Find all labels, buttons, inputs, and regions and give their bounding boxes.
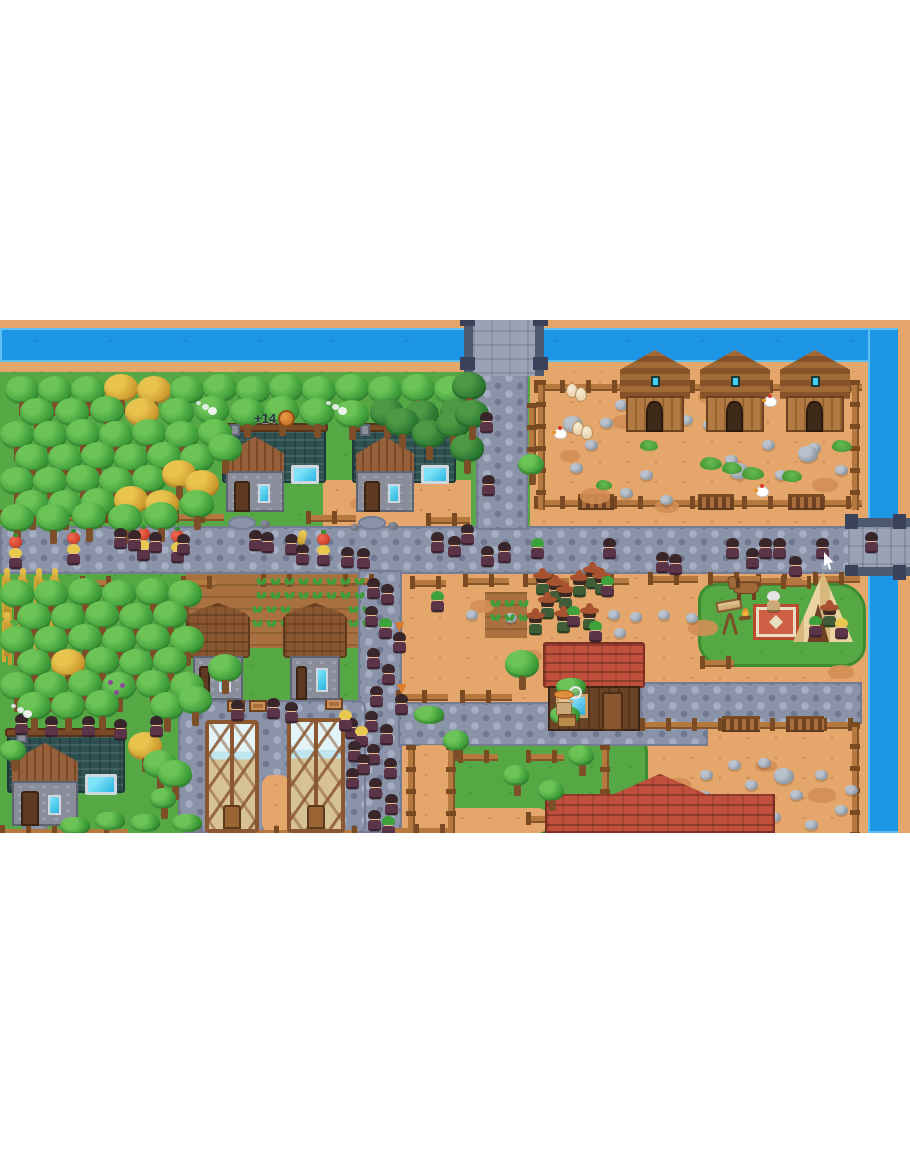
rock — [620, 488, 633, 498]
greenhouse[interactable] — [205, 720, 259, 833]
villager[interactable] — [430, 591, 445, 614]
tree — [36, 504, 70, 546]
villager[interactable] — [588, 621, 603, 644]
crop-sprout — [284, 590, 295, 599]
rock — [614, 628, 626, 638]
villager[interactable] — [81, 716, 96, 739]
villager[interactable] — [480, 546, 495, 569]
villager[interactable] — [127, 530, 142, 553]
rock — [728, 760, 741, 770]
easel — [722, 613, 738, 635]
villager[interactable] — [384, 794, 399, 817]
rock — [790, 790, 803, 800]
crop-sprout — [490, 612, 501, 621]
villager[interactable] — [379, 724, 394, 747]
crop-sprout — [354, 590, 365, 599]
crop-sprout — [504, 598, 515, 607]
villager[interactable] — [148, 532, 163, 555]
villager[interactable] — [369, 686, 384, 709]
villager[interactable] — [394, 694, 409, 717]
crop-sprout — [284, 576, 295, 585]
villager[interactable] — [266, 698, 281, 721]
villager[interactable] — [758, 538, 773, 561]
villager[interactable] — [66, 544, 81, 567]
stone-bridge[interactable] — [464, 320, 544, 376]
rock — [388, 522, 398, 530]
floating-coin-text: +14 — [254, 410, 295, 427]
grass-tuft — [640, 440, 658, 451]
egg — [572, 421, 594, 441]
crop-sprout — [354, 576, 365, 585]
villager[interactable] — [668, 554, 683, 577]
rock — [762, 440, 775, 450]
villager[interactable] — [808, 616, 823, 639]
villager[interactable] — [316, 545, 331, 568]
rock — [570, 463, 583, 473]
tree — [518, 454, 544, 486]
tree — [505, 650, 539, 692]
trader-npc[interactable] — [552, 686, 582, 728]
villager[interactable] — [497, 542, 512, 565]
crop-sprout — [270, 590, 281, 599]
dirt-patch — [808, 788, 836, 803]
fence — [526, 750, 564, 763]
tree — [208, 654, 242, 696]
villager[interactable] — [364, 606, 379, 629]
rock — [835, 805, 848, 815]
villager[interactable] — [230, 700, 245, 723]
chimney-smoke — [205, 405, 217, 415]
villager[interactable] — [356, 548, 371, 571]
chicken[interactable] — [764, 396, 777, 407]
rock — [835, 465, 848, 475]
villager[interactable] — [528, 614, 543, 637]
grass-tuft — [722, 462, 742, 474]
rock — [815, 770, 828, 780]
villager[interactable] — [345, 768, 360, 791]
fence — [406, 745, 416, 833]
horse[interactable] — [728, 576, 762, 601]
fence — [463, 574, 509, 587]
dirt-patch — [828, 665, 854, 679]
villager[interactable] — [378, 618, 393, 641]
crop-sprout — [252, 618, 263, 627]
chicken-coop[interactable] — [700, 350, 770, 435]
crop-sprout — [340, 576, 351, 585]
rock — [630, 612, 642, 622]
bush — [414, 706, 444, 724]
villager[interactable] — [367, 810, 382, 833]
river-water — [868, 328, 900, 833]
bush — [95, 812, 125, 830]
rock — [466, 610, 478, 620]
chicken-coop[interactable] — [620, 350, 690, 435]
villager[interactable] — [338, 710, 353, 733]
stone-bridge[interactable] — [848, 518, 910, 576]
game-viewport[interactable]: +14 — [0, 320, 910, 833]
crop-sprout — [266, 618, 277, 627]
villager[interactable] — [392, 632, 407, 655]
chimney-smoke — [20, 708, 32, 718]
crop-sprout — [518, 598, 529, 607]
bush — [172, 814, 202, 832]
villager[interactable] — [834, 618, 849, 641]
tree — [180, 490, 214, 532]
grass-tuft — [742, 467, 764, 480]
villager[interactable] — [380, 584, 395, 607]
greenhouse[interactable] — [287, 718, 345, 833]
grass-tuft — [832, 440, 852, 452]
grass-tuft — [782, 470, 802, 482]
villager[interactable] — [366, 578, 381, 601]
tree — [538, 780, 564, 812]
villager[interactable] — [340, 547, 355, 570]
rock — [798, 446, 818, 462]
tree — [178, 686, 212, 728]
villager[interactable] — [368, 778, 383, 801]
chimney-smoke — [335, 405, 347, 415]
rock — [805, 820, 818, 830]
rock — [686, 613, 698, 623]
gate-icon[interactable] — [786, 716, 824, 732]
rock — [260, 520, 270, 528]
villager[interactable] — [284, 702, 299, 725]
rock — [745, 780, 758, 790]
villager[interactable] — [260, 532, 275, 555]
crop-sprout — [490, 598, 501, 607]
crop-sprout — [298, 590, 309, 599]
coin-gain-value: +14 — [254, 411, 276, 426]
villager[interactable] — [176, 534, 191, 557]
rock — [585, 440, 598, 450]
tree — [300, 398, 334, 440]
rock — [758, 758, 771, 768]
tree — [503, 765, 529, 797]
fence — [536, 380, 546, 510]
villager[interactable] — [149, 716, 164, 739]
villager[interactable] — [566, 606, 581, 629]
villager[interactable] — [530, 538, 545, 561]
rock — [845, 785, 858, 795]
tree — [0, 740, 26, 772]
crop-sprout — [256, 576, 267, 585]
rock — [660, 495, 673, 505]
chicken-coop[interactable] — [780, 350, 850, 435]
rock — [350, 524, 359, 531]
sand-ground — [898, 320, 910, 833]
tree — [443, 730, 469, 762]
villager[interactable] — [772, 538, 787, 561]
villager[interactable] — [44, 716, 59, 739]
grass-tuft — [700, 457, 722, 470]
villager[interactable] — [383, 758, 398, 781]
rock — [608, 610, 620, 620]
villager[interactable] — [864, 532, 879, 555]
crop-sprout — [504, 612, 515, 621]
fence — [388, 824, 450, 833]
chicken[interactable] — [756, 486, 769, 497]
rock — [700, 770, 713, 780]
dirt-patch — [560, 450, 580, 462]
crop-sprout — [326, 590, 337, 599]
farmhouse[interactable] — [285, 603, 345, 705]
villager[interactable] — [600, 576, 615, 599]
gate-icon[interactable] — [722, 716, 760, 732]
crate — [249, 700, 267, 712]
crop-sprout — [312, 590, 323, 599]
rock — [774, 768, 794, 784]
villager[interactable] — [788, 556, 803, 579]
crop-sprout — [270, 576, 281, 585]
villager[interactable] — [430, 532, 445, 555]
crop-sprout — [256, 590, 267, 599]
villager[interactable] — [8, 548, 23, 571]
egg — [566, 383, 588, 403]
crop-sprout — [312, 576, 323, 585]
villager[interactable] — [602, 538, 617, 561]
villager[interactable] — [479, 412, 494, 435]
villager[interactable] — [113, 528, 128, 551]
campfire — [739, 608, 751, 621]
tree — [568, 745, 594, 777]
villager[interactable] — [295, 544, 310, 567]
villager[interactable] — [113, 719, 128, 742]
fence — [527, 403, 537, 455]
fence — [700, 656, 734, 669]
crop-sprout — [340, 590, 351, 599]
villager[interactable] — [366, 648, 381, 671]
rock — [658, 610, 670, 620]
grass-tuft — [596, 480, 612, 490]
gate-icon[interactable] — [788, 494, 824, 510]
gate-icon[interactable] — [698, 494, 734, 510]
crop-sprout — [298, 576, 309, 585]
villager[interactable] — [460, 524, 475, 547]
crop-sprout — [266, 604, 277, 613]
rock — [640, 470, 653, 480]
bush — [60, 817, 90, 833]
villager[interactable] — [381, 816, 396, 833]
crop-sprout — [252, 604, 263, 613]
villager[interactable] — [481, 475, 496, 498]
fence — [410, 576, 446, 589]
coin-icon — [278, 410, 295, 427]
chicken[interactable] — [554, 428, 567, 439]
dirt-patch — [580, 488, 610, 504]
rock — [600, 418, 613, 428]
villager[interactable] — [381, 664, 396, 687]
crop-sprout — [348, 618, 359, 627]
fence — [850, 722, 860, 833]
crop-sprout — [348, 604, 359, 613]
villager[interactable] — [725, 538, 740, 561]
bush — [130, 814, 160, 832]
villager[interactable] — [766, 591, 781, 614]
crop-sprout — [326, 576, 337, 585]
screenshot-page: +14 — [0, 0, 910, 1155]
sand-walkway — [262, 775, 290, 833]
dirt-patch — [812, 478, 838, 492]
